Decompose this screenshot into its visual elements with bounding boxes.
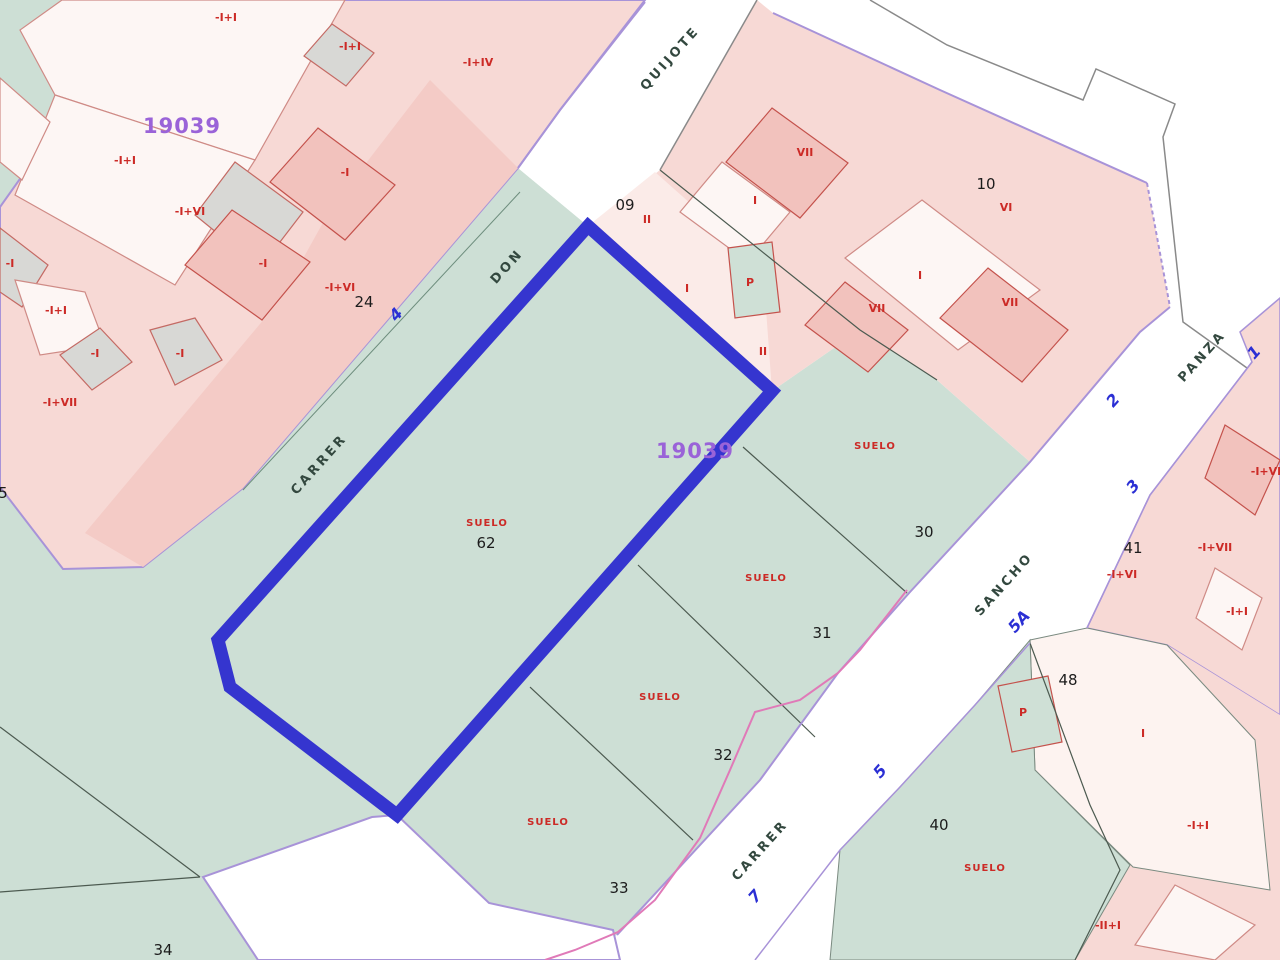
building-code-label: I <box>685 282 689 295</box>
building-code-label: -I+I <box>1187 819 1209 832</box>
building-code-label: -I <box>341 166 350 179</box>
parcel-number-label: 24 <box>354 293 373 311</box>
building-code-label: VII <box>869 302 886 315</box>
suelo-label: SUELO <box>854 441 896 452</box>
cadastral-map[interactable]: 19039190392409103031323334404148625QUIJO… <box>0 0 1280 960</box>
parcel-number-label: 30 <box>914 523 933 541</box>
parcel-number-label: 40 <box>929 816 948 834</box>
building-code-label: II <box>759 345 767 358</box>
parcel-number-label: 5 <box>0 484 8 502</box>
building-code-label: -I+VI <box>325 281 355 294</box>
building-code-label: -I+VI <box>1251 465 1280 478</box>
building-code-label: I <box>918 269 922 282</box>
parcel-number-label: 10 <box>976 175 995 193</box>
parcel-number-label: 41 <box>1123 539 1142 557</box>
parcel-number-label: 33 <box>609 879 628 897</box>
building-code-label: -I+VI <box>1107 568 1137 581</box>
building-code-label: -I+VII <box>43 396 78 409</box>
suelo-label: SUELO <box>527 817 569 828</box>
suelo-label: SUELO <box>466 518 508 529</box>
building-code-label: -I <box>259 257 268 270</box>
building-code-label: -I+I <box>114 154 136 167</box>
building-code-label: II <box>643 213 651 226</box>
building-code-label: VI <box>1000 201 1013 214</box>
building-code-label: -I+I <box>339 40 361 53</box>
building-code-label: -I+I <box>1226 605 1248 618</box>
zone-code-label: 19039 <box>656 439 734 463</box>
parcel-number-label: 09 <box>615 196 634 214</box>
building-code-label: I <box>1141 727 1145 740</box>
building-code-label: VII <box>797 146 814 159</box>
parcel-number-label: 31 <box>812 624 831 642</box>
parcel-number-label: 48 <box>1058 671 1077 689</box>
building-code-label: -I+VII <box>1198 541 1233 554</box>
building-code-label: -I <box>91 347 100 360</box>
building-code-label: -I+I <box>215 11 237 24</box>
suelo-label: SUELO <box>639 692 681 703</box>
building-code-label: -I+IV <box>463 56 494 69</box>
parcel-number-label: 32 <box>713 746 732 764</box>
building-code-label: -I <box>6 257 15 270</box>
parcel-number-label: 34 <box>153 941 172 959</box>
building-code-label: VII <box>1002 296 1019 309</box>
zone-code-label: 19039 <box>143 114 221 138</box>
building-code-label: -I+VI <box>175 205 205 218</box>
building-code-label: -I+I <box>45 304 67 317</box>
parcel-number-label: 62 <box>476 534 495 552</box>
building-code-label: -I <box>176 347 185 360</box>
suelo-label: SUELO <box>745 573 787 584</box>
building-code-label: I <box>753 194 757 207</box>
building-code-label: -II+I <box>1095 919 1121 932</box>
building-code-label: P <box>1019 706 1027 719</box>
suelo-label: SUELO <box>964 863 1006 874</box>
building-code-label: P <box>746 276 754 289</box>
